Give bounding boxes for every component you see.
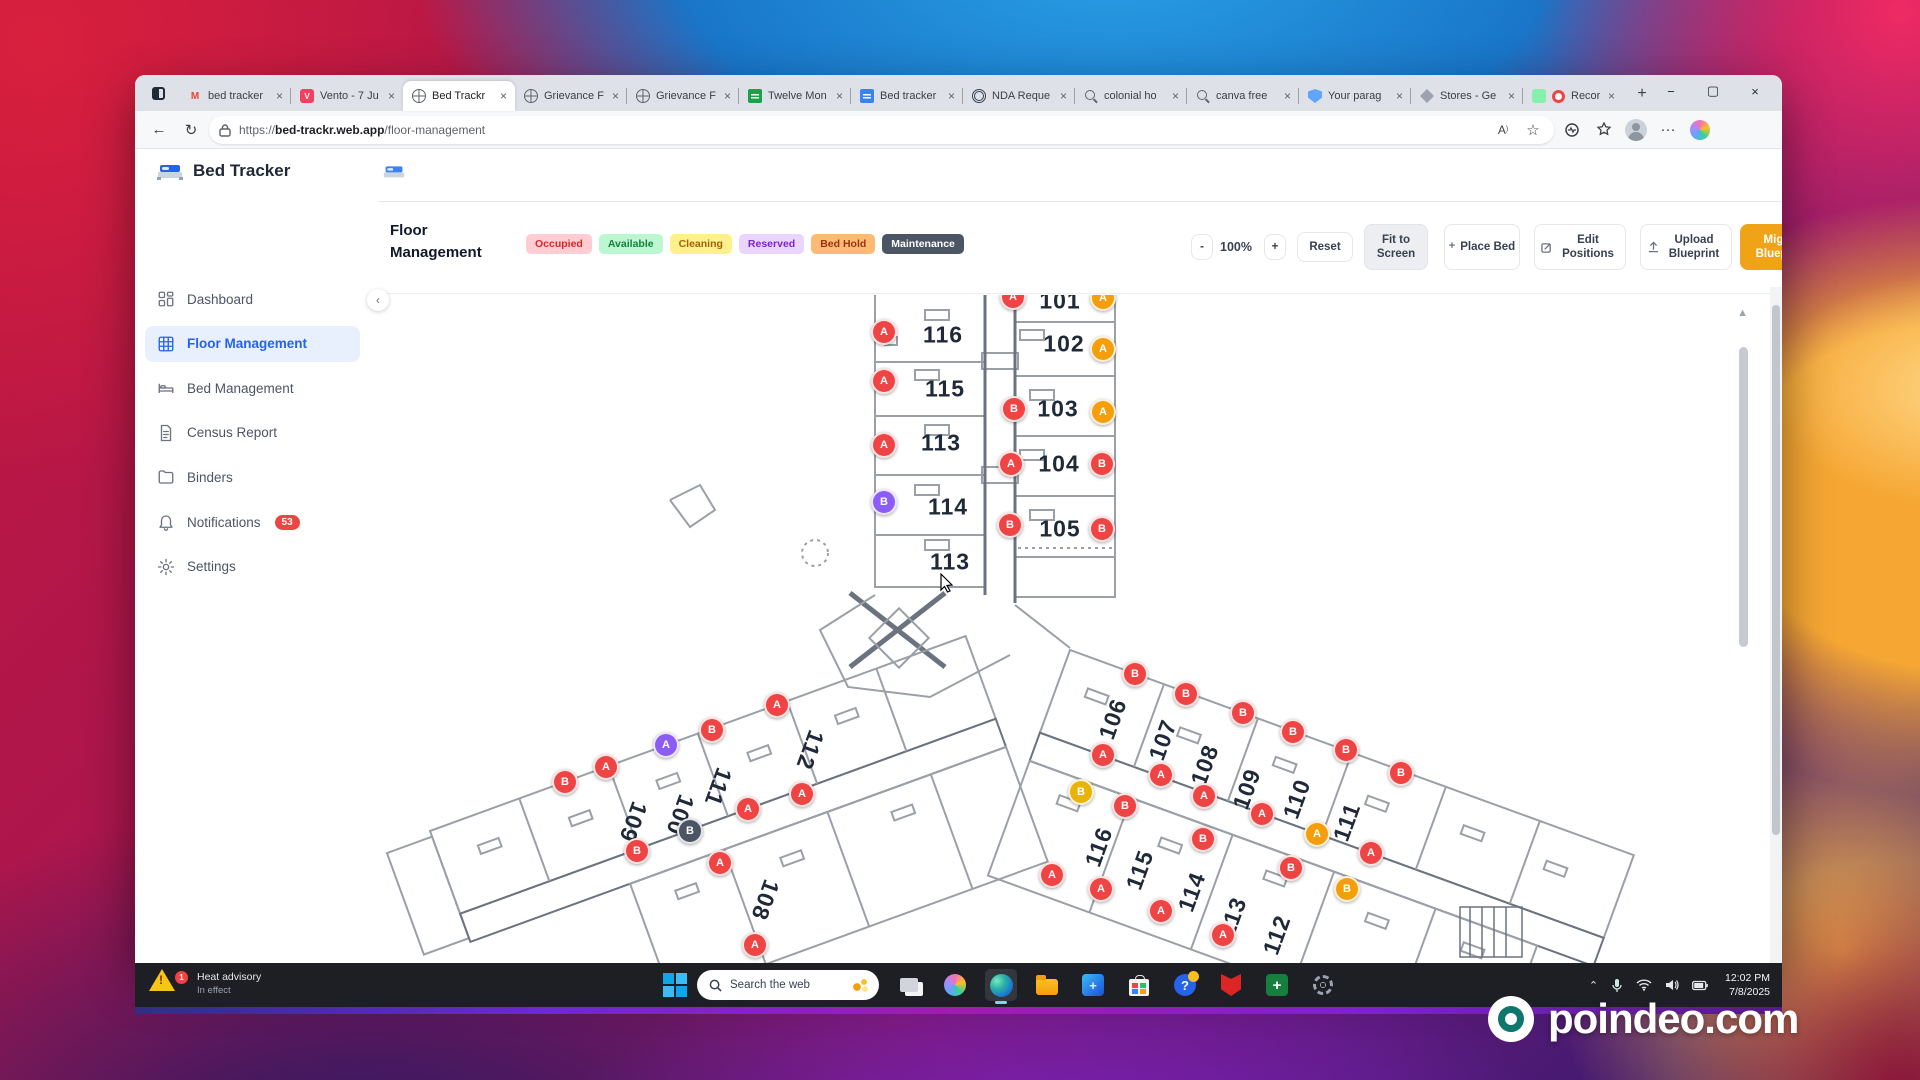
page-scrollbar[interactable] <box>1770 287 1782 963</box>
bed-marker-a-red[interactable]: A <box>871 368 897 394</box>
taskbar-search[interactable]: Search the web <box>697 970 879 1000</box>
bed-marker-a-orange[interactable]: A <box>1090 336 1116 362</box>
browser-tab[interactable]: Grievance F× <box>515 81 627 111</box>
tab-label: Vento - 7 Ju <box>320 90 380 102</box>
map-scrollbar[interactable] <box>1739 335 1748 935</box>
sheets-icon <box>748 89 762 103</box>
sidebar-item-label: Bed Management <box>187 381 294 396</box>
bed-marker-a-red[interactable]: A <box>789 781 815 807</box>
sidebar-item-binders[interactable]: Binders <box>145 459 360 495</box>
globe-icon <box>636 89 650 103</box>
tab-label: bed tracker <box>208 90 268 102</box>
tab-label: Record <box>1571 90 1600 102</box>
copilot-icon <box>944 974 966 996</box>
vento-icon: V <box>300 89 314 103</box>
store-icon <box>1129 979 1149 996</box>
bed-marker-b-red[interactable]: B <box>699 717 725 743</box>
bed-tracker-app: Bed Tracker DashboardFloor ManagementBed… <box>135 149 1782 963</box>
tab-actions-icon[interactable] <box>145 80 171 106</box>
bed-marker-b-red[interactable]: B <box>1173 681 1199 707</box>
room-number: 102 <box>1043 331 1084 358</box>
tab-close-icon[interactable]: × <box>386 89 397 103</box>
upload-icon <box>1648 241 1659 253</box>
bed-marker-a-red[interactable]: A <box>1088 876 1114 902</box>
app-title: Bed Tracker <box>193 161 290 181</box>
window-controls: − ▢ × <box>1650 75 1776 107</box>
bed-marker-b-orange[interactable]: B <box>1334 876 1360 902</box>
sidebar-item-label: Census Report <box>187 425 277 440</box>
tab-label: Twelve Mon <box>768 90 828 102</box>
bed-marker-a-red[interactable]: A <box>707 850 733 876</box>
app-header: Bed Tracker <box>135 149 1782 201</box>
start-button[interactable] <box>663 973 687 997</box>
tab-label: Bed tracker <box>880 90 940 102</box>
bed-marker-a-red[interactable]: A <box>764 692 790 718</box>
sidebar-item-bed-management[interactable]: Bed Management <box>145 370 360 406</box>
excel-icon[interactable]: + <box>1261 969 1293 1001</box>
maximize-button[interactable]: ▢ <box>1692 75 1734 107</box>
browser-tab[interactable]: Bed tracker× <box>851 81 963 111</box>
watermark-text: poindeo.com <box>1548 995 1798 1043</box>
tab-close-icon[interactable]: × <box>946 89 957 103</box>
bed-marker-a-red[interactable]: A <box>735 796 761 822</box>
copilot-icon[interactable] <box>939 969 971 1001</box>
zoom-level: 100% <box>1220 240 1252 254</box>
tab-close-icon[interactable]: × <box>1058 89 1069 103</box>
bed-marker-b-red[interactable]: B <box>1122 661 1148 687</box>
sidebar-collapse-button[interactable]: ‹ <box>367 289 389 311</box>
room-number: 103 <box>1037 396 1078 423</box>
settings-gear-icon <box>1313 975 1333 995</box>
sidebar-item-label: Notifications <box>187 515 261 530</box>
mcafee-icon <box>1221 974 1241 996</box>
search-icon <box>1084 89 1098 103</box>
tray-time: 12:02 PM <box>1725 971 1770 985</box>
place-bed-button[interactable]: +Place Bed <box>1444 224 1520 270</box>
room-number: 105 <box>1039 516 1080 543</box>
tab-label: canva free <box>1216 90 1276 102</box>
room-number: 114 <box>928 494 968 521</box>
tab-label: colonial ho <box>1104 90 1164 102</box>
legend-chip-available: Available <box>599 234 663 254</box>
bed-marker-a-purple[interactable]: A <box>653 732 679 758</box>
sidebar-item-label: Settings <box>187 559 236 574</box>
page-title: FloorManagement <box>390 220 500 264</box>
zoom-out-button[interactable]: - <box>1191 234 1213 260</box>
health-app-icon[interactable]: + <box>1077 969 1109 1001</box>
edge-icon[interactable] <box>985 969 1017 1001</box>
notification-count-badge: 53 <box>275 515 300 530</box>
bed-marker-b-red[interactable]: B <box>1001 396 1027 422</box>
legend-chip-cleaning: Cleaning <box>670 234 732 254</box>
bed-marker-b-red[interactable]: B <box>1333 737 1359 763</box>
gear-icon <box>157 558 175 576</box>
record-dot-icon <box>1552 90 1565 103</box>
file-explorer-icon <box>1036 979 1058 995</box>
tab-label: Bed Trackr <box>432 90 492 102</box>
sidebar-item-notifications[interactable]: Notifications53 <box>145 504 360 540</box>
weather-headline: Heat advisory <box>197 971 261 985</box>
browser-tab[interactable]: colonial ho× <box>1075 81 1187 111</box>
bed-marker-a-red[interactable]: A <box>593 754 619 780</box>
sidebar-item-dashboard[interactable]: Dashboard <box>145 281 360 317</box>
bell-icon <box>157 513 175 531</box>
zoom-in-button[interactable]: + <box>1264 234 1286 260</box>
bed-marker-b-red[interactable]: B <box>552 769 578 795</box>
tab-label: Stores - Ge <box>1440 90 1500 102</box>
collections-icon[interactable] <box>1590 116 1618 144</box>
read-aloud-icon[interactable]: A) <box>1492 116 1514 144</box>
status-legend: OccupiedAvailableCleaningReservedBed Hol… <box>526 234 964 254</box>
room-number: 101 <box>1039 295 1080 315</box>
binders-folder-icon <box>157 468 175 486</box>
task-view-icon <box>900 978 918 992</box>
browser-tab[interactable]: canva free× <box>1187 81 1299 111</box>
battery-icon[interactable] <box>1692 980 1708 991</box>
settings-gear-icon[interactable] <box>1307 969 1339 1001</box>
store-icon[interactable] <box>1123 969 1155 1001</box>
bed-marker-a-orange[interactable]: A <box>1304 821 1330 847</box>
shield-icon <box>1308 89 1322 103</box>
browser-tab[interactable]: NDA Reque× <box>963 81 1075 111</box>
bed-marker-a-red[interactable]: A <box>1039 862 1065 888</box>
browser-window: Mbed tracker×VVento - 7 Ju×Bed Trackr×Gr… <box>135 75 1782 963</box>
favorite-star-icon[interactable]: ☆ <box>1522 116 1544 144</box>
tab-strip: Mbed tracker×VVento - 7 Ju×Bed Trackr×Gr… <box>135 75 1782 111</box>
browser-tab[interactable]: Stores - Ge× <box>1411 81 1523 111</box>
floor-plan-canvas[interactable]: 1011161021151031131041141051131091001111… <box>370 295 1760 963</box>
bed-marker-a-red[interactable]: A <box>1249 801 1275 827</box>
search-highlights-icon <box>851 975 871 995</box>
mini-bed-icon <box>383 163 405 180</box>
alert-count-badge: 1 <box>175 971 188 984</box>
sidebar-item-label: Dashboard <box>187 292 253 307</box>
tab-label: Grievance F <box>656 90 716 102</box>
bed-marker-b-red[interactable]: B <box>1190 826 1216 852</box>
legend-chip-maintenance: Maintenance <box>882 234 964 254</box>
bed-marker-b-red[interactable]: B <box>1089 516 1115 542</box>
globe-icon <box>412 89 426 103</box>
room-number: 104 <box>1038 451 1079 478</box>
room-number: 113 <box>921 430 961 457</box>
address-bar[interactable]: https://bed-trackr.web.app/floor-managem… <box>209 116 1554 144</box>
sidebar-item-census-report[interactable]: Census Report <box>145 415 360 451</box>
main-panel: FloorManagement OccupiedAvailableCleanin… <box>378 202 1782 963</box>
bed-marker-b-red[interactable]: B <box>1278 855 1304 881</box>
tab-close-icon[interactable]: × <box>498 89 509 103</box>
hidden-icons-chevron[interactable]: ⌃ <box>1589 979 1598 992</box>
record-icon <box>1532 89 1546 103</box>
mcafee-icon[interactable] <box>1215 969 1247 1001</box>
tab-close-icon[interactable]: × <box>1394 89 1405 103</box>
help-icon[interactable]: ? <box>1169 969 1201 1001</box>
legend-chip-reserved: Reserved <box>739 234 804 254</box>
watermark: poindeo.com <box>1488 995 1798 1043</box>
bed-icon <box>157 379 175 397</box>
minimize-button[interactable]: − <box>1650 75 1692 107</box>
bed-marker-a-red[interactable]: A <box>871 319 897 345</box>
migrate-blueprints-button[interactable]: Migrate Blueprints <box>1740 224 1782 270</box>
bed-marker-b-red[interactable]: B <box>1280 719 1306 745</box>
search-placeholder: Search the web <box>730 979 843 991</box>
bed-marker-b-red[interactable]: B <box>997 512 1023 538</box>
volume-icon[interactable] <box>1665 979 1679 991</box>
bed-marker-a-red[interactable]: A <box>1090 742 1116 768</box>
bed-marker-a-red[interactable]: A <box>998 451 1024 477</box>
bed-marker-b-purple[interactable]: B <box>871 489 897 515</box>
url-text: https://bed-trackr.web.app/floor-managem… <box>239 123 1484 137</box>
floor-toolbar: FloorManagement OccupiedAvailableCleanin… <box>378 202 1782 294</box>
bed-marker-a-red[interactable]: A <box>1358 840 1384 866</box>
sidebar-item-label: Floor Management <box>187 336 307 351</box>
tab-close-icon[interactable]: × <box>274 89 285 103</box>
file-explorer-icon[interactable] <box>1031 969 1063 1001</box>
sidebar-item-label: Binders <box>187 470 233 485</box>
edit-pencil-icon <box>1541 242 1552 253</box>
reset-button[interactable]: Reset <box>1297 232 1353 262</box>
bed-marker-a-red[interactable]: A <box>742 932 768 958</box>
tab-close-icon[interactable]: × <box>834 89 845 103</box>
excel-icon: + <box>1266 974 1288 996</box>
sidebar-item-floor-management[interactable]: Floor Management <box>145 326 360 362</box>
edge-icon <box>990 974 1013 997</box>
close-button[interactable]: × <box>1734 75 1776 107</box>
copilot-icon[interactable] <box>1686 116 1714 144</box>
browser-essentials-icon[interactable] <box>1558 116 1586 144</box>
profile-avatar[interactable] <box>1622 116 1650 144</box>
floor-grid-icon <box>157 335 175 353</box>
back-icon[interactable]: ← <box>145 116 173 144</box>
bed-marker-a-red[interactable]: A <box>1148 762 1174 788</box>
task-view-icon[interactable] <box>893 969 925 1001</box>
bed-marker-b-red[interactable]: B <box>1112 793 1138 819</box>
browser-tab[interactable]: Bed Trackr× <box>403 81 515 111</box>
legend-chip-occupied: Occupied <box>526 234 592 254</box>
bed-marker-b-yellow[interactable]: B <box>1068 779 1094 805</box>
legend-chip-bed-hold: Bed Hold <box>811 234 875 254</box>
nda-icon <box>972 89 986 103</box>
health-app-icon: + <box>1082 974 1104 996</box>
sidebar: DashboardFloor ManagementBed ManagementC… <box>135 201 378 963</box>
browser-tab[interactable]: Grievance F× <box>627 81 739 111</box>
bed-marker-a-red[interactable]: A <box>1148 898 1174 924</box>
app-brand: Bed Tracker <box>157 161 290 181</box>
tab-close-icon[interactable]: × <box>1506 89 1517 103</box>
tab-label: NDA Reque <box>992 90 1052 102</box>
wifi-icon[interactable] <box>1636 979 1652 991</box>
tab-label: Grievance F <box>544 90 604 102</box>
tab-close-icon[interactable]: × <box>722 89 733 103</box>
browser-tab[interactable]: Record× <box>1523 81 1623 111</box>
bed-marker-b-gray[interactable]: B <box>677 818 703 844</box>
bed-marker-a-orange[interactable]: A <box>1090 399 1116 425</box>
browser-tab[interactable]: Twelve Mon× <box>739 81 851 111</box>
bed-marker-a-red[interactable]: A <box>871 432 897 458</box>
census-doc-icon <box>157 424 175 442</box>
dashboard-icon <box>157 290 175 308</box>
docs-icon <box>860 89 874 103</box>
microphone-icon[interactable] <box>1611 978 1623 993</box>
search-icon <box>709 979 722 992</box>
bed-tracker-logo-icon <box>157 161 183 181</box>
edit-positions-button[interactable]: Edit Positions <box>1534 224 1626 270</box>
browser-tab[interactable]: VVento - 7 Ju× <box>291 81 403 111</box>
mouse-cursor <box>940 573 954 593</box>
scroll-up-icon[interactable]: ▲ <box>1737 307 1748 319</box>
tab-close-icon[interactable]: × <box>1606 89 1617 103</box>
tab-close-icon[interactable]: × <box>1170 89 1181 103</box>
more-menu-icon[interactable]: ··· <box>1654 116 1682 144</box>
sidebar-item-settings[interactable]: Settings <box>145 549 360 585</box>
warning-triangle-icon <box>149 969 175 991</box>
weather-subtext: In effect <box>197 985 261 997</box>
browser-tab[interactable]: Your parag× <box>1299 81 1411 111</box>
room-number: 113 <box>930 549 970 576</box>
room-number: 115 <box>925 376 965 403</box>
help-icon: ? <box>1174 974 1196 996</box>
tab-label: Your parag <box>1328 90 1388 102</box>
bed-marker-b-red[interactable]: B <box>1230 700 1256 726</box>
bed-marker-b-red[interactable]: B <box>624 838 650 864</box>
bed-marker-a-red[interactable]: A <box>1210 922 1236 948</box>
fit-to-screen-button[interactable]: Fit to Screen <box>1364 224 1428 270</box>
globe-icon <box>524 89 538 103</box>
reload-icon[interactable]: ↻ <box>177 116 205 144</box>
browser-tab[interactable]: Mbed tracker× <box>179 81 291 111</box>
lock-icon <box>219 123 231 137</box>
diamond-icon <box>1420 89 1434 103</box>
bed-marker-b-red[interactable]: B <box>1388 760 1414 786</box>
upload-blueprint-button[interactable]: Upload Blueprint <box>1640 224 1732 270</box>
bed-marker-b-red[interactable]: B <box>1089 451 1115 477</box>
browser-toolbar: ← ↻ https://bed-trackr.web.app/floor-man… <box>135 111 1782 149</box>
poindeo-logo-icon <box>1488 996 1534 1042</box>
weather-widget[interactable]: 1 Heat advisory In effect <box>149 969 261 999</box>
tab-close-icon[interactable]: × <box>610 89 621 103</box>
bed-marker-a-red[interactable]: A <box>1191 783 1217 809</box>
screen: Mbed tracker×VVento - 7 Ju×Bed Trackr×Gr… <box>0 0 1920 1080</box>
gmail-icon: M <box>188 89 202 103</box>
search-icon <box>1196 89 1210 103</box>
room-number: 116 <box>923 322 963 349</box>
tab-close-icon[interactable]: × <box>1282 89 1293 103</box>
